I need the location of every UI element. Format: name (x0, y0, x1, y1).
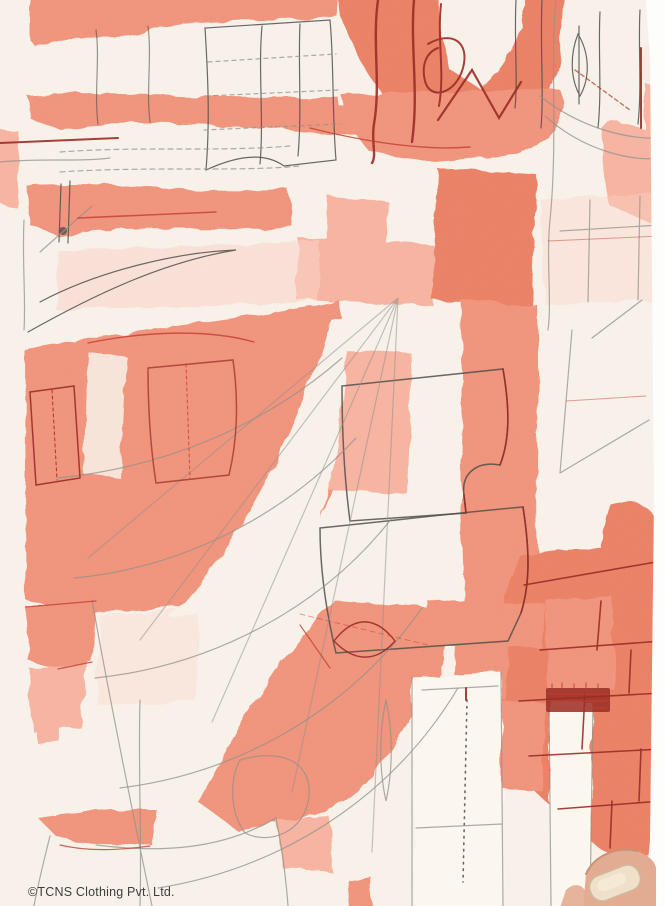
watermark-text: ©TCNS Clothing Pvt. Ltd. (28, 885, 175, 899)
fabric-photo: ©TCNS Clothing Pvt. Ltd. (0, 0, 665, 906)
fabric-print-illustration (0, 0, 665, 906)
